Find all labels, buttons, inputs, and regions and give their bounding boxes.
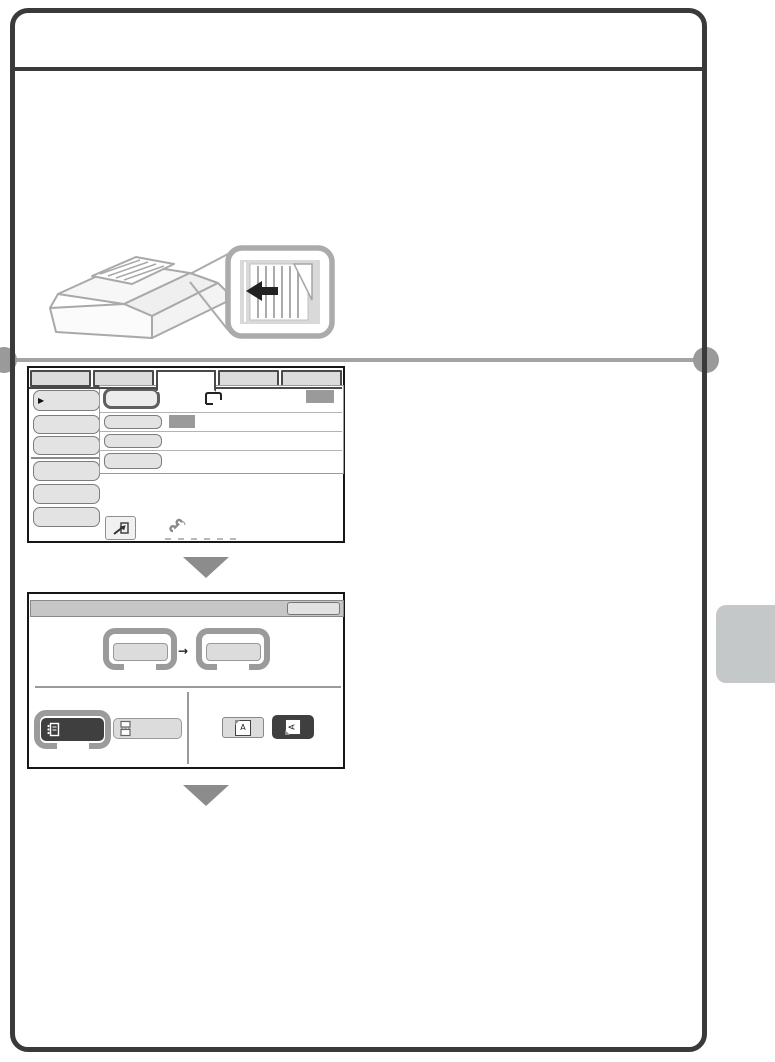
tab-1[interactable] (30, 370, 91, 387)
memory-indicator (306, 390, 334, 403)
frame-gap (124, 664, 156, 670)
menu-key-3[interactable] (33, 436, 100, 455)
fax-base-screen: ▶ (27, 366, 345, 543)
orientation-letter-rotated: A (289, 724, 297, 729)
orientation-landscape-key[interactable]: A (272, 715, 314, 739)
vertical-separator (187, 692, 189, 764)
tab-3-selected[interactable] (156, 370, 217, 392)
row-separator (100, 450, 342, 451)
manual-page: ▶ (0, 0, 775, 1062)
orientation-portrait-icon: A (235, 720, 251, 736)
section-divider-dot-right (693, 347, 719, 373)
two-sided-booklet-icon (46, 721, 60, 738)
redial-key-icon (111, 520, 131, 537)
chapter-side-tab (716, 605, 775, 683)
menu-key-2[interactable] (33, 415, 100, 434)
size-arrow-icon: → (178, 644, 188, 658)
illegible-caption-dashes (165, 538, 241, 540)
printer-illustration (40, 236, 342, 350)
memory-indicator-2 (169, 415, 195, 428)
orientation-portrait-key[interactable]: A (222, 717, 264, 738)
row-separator (100, 412, 342, 413)
send-size-key[interactable] (206, 643, 261, 661)
menu-separator (31, 457, 102, 459)
highlighted-key[interactable] (103, 388, 160, 409)
panel-key-4[interactable] (104, 453, 162, 469)
frame-gap (57, 743, 89, 749)
panel-key-3[interactable] (104, 434, 162, 448)
section-divider-line (6, 358, 708, 362)
selection-marker-icon: ▶ (38, 397, 44, 405)
section-divider-dot-left (0, 347, 17, 373)
page-fold (235, 720, 240, 725)
header-rule (13, 67, 704, 71)
horizontal-separator (35, 686, 341, 688)
frame-gap (217, 664, 249, 670)
menu-key-6[interactable] (33, 507, 100, 527)
two-sided-tablet-key[interactable] (113, 718, 182, 739)
ok-button[interactable] (287, 602, 340, 615)
menu-key-4[interactable] (33, 461, 100, 481)
row-separator (100, 431, 342, 432)
redial-key[interactable] (105, 516, 136, 540)
scan-size-key[interactable] (113, 643, 168, 661)
callout-magnifier (228, 248, 332, 336)
step-down-arrow-icon (183, 785, 229, 806)
page-fold (285, 730, 290, 735)
step-down-arrow-icon (183, 557, 229, 578)
original-settings-screen: → A (27, 592, 345, 769)
orientation-letter: A (240, 724, 245, 732)
settings-panel (99, 385, 344, 474)
orientation-landscape-icon: A (285, 719, 301, 735)
original-icon (204, 391, 224, 406)
panel-key-2[interactable] (104, 415, 162, 429)
menu-key-5[interactable] (33, 484, 100, 504)
two-sided-tablet-icon (118, 720, 133, 737)
two-sided-booklet-key[interactable] (41, 718, 104, 741)
menu-key-1[interactable]: ▶ (33, 390, 100, 411)
handset-icon (169, 518, 187, 533)
